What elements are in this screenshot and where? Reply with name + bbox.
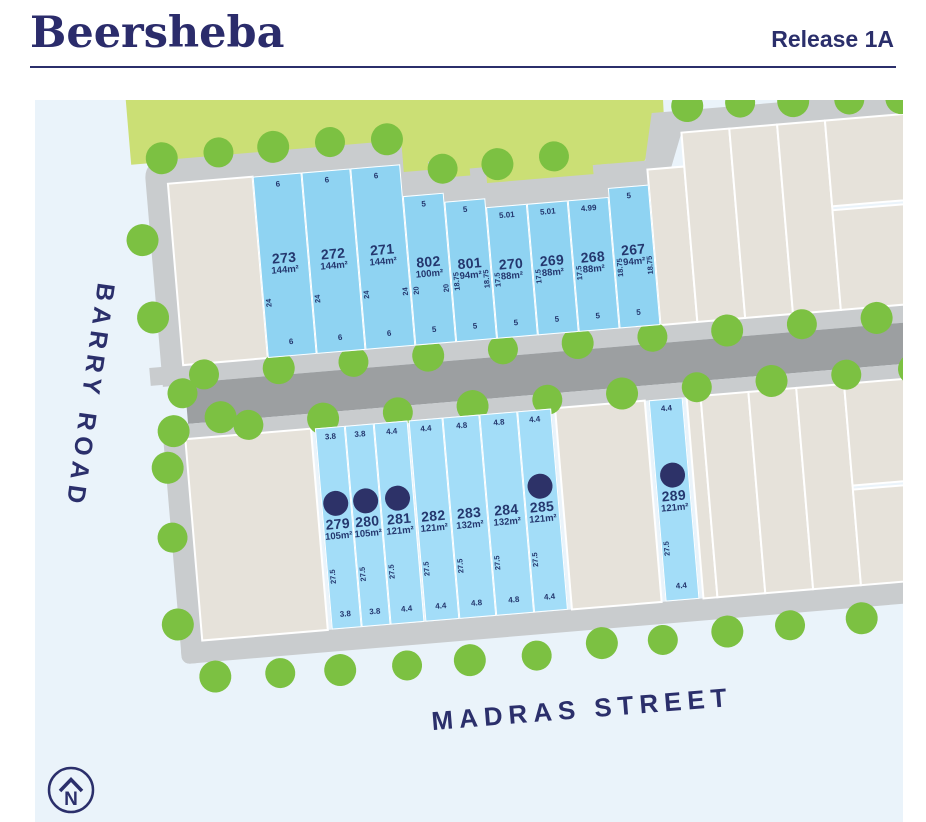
rear-dim: 5 xyxy=(414,323,454,335)
sold-dot xyxy=(659,462,686,489)
page-title: Beersheba xyxy=(30,8,284,58)
lot-289[interactable]: 4.44.427.5289121m² xyxy=(649,397,700,601)
site-plan-map: 6624273144m²6624272144m²662424271144m²55… xyxy=(35,100,903,822)
lot-label: 26794m² xyxy=(593,238,674,272)
rear-dim: 4.4 xyxy=(424,600,457,612)
frontage-dim: 4.8 xyxy=(481,416,517,428)
frontage-dim: 6 xyxy=(352,169,400,182)
rear-dim: 3.8 xyxy=(361,606,389,617)
side-dim-left: 27.5 xyxy=(492,556,502,571)
plan-rotated-group: 6624273144m²6624272144m²662424271144m²55… xyxy=(35,100,903,753)
side-dim-left: 27.5 xyxy=(530,552,540,567)
rear-dim: 4.8 xyxy=(459,597,495,609)
frontage-dim: 4.8 xyxy=(444,420,480,432)
side-dim-right: 20 xyxy=(441,283,451,292)
lot-label: 285121m² xyxy=(505,496,579,529)
frontage-dim: 5.01 xyxy=(487,209,527,221)
side-dim-left: 27.5 xyxy=(662,541,672,556)
side-dim-left: 24 xyxy=(264,298,274,307)
rear-dim: 5 xyxy=(578,310,618,322)
side-dim-left: 27.5 xyxy=(357,567,367,582)
lots-layer: 6624273144m²6624272144m²662424271144m²55… xyxy=(35,100,903,753)
rear-dim: 5 xyxy=(537,313,577,325)
rear-dim: 5 xyxy=(496,317,536,329)
rear-dim: 6 xyxy=(267,335,315,348)
sold-dot xyxy=(384,485,411,512)
compass-n-label: N xyxy=(64,789,78,810)
frontage-dim: 3.8 xyxy=(346,428,374,439)
side-dim-left: 27.5 xyxy=(328,569,338,584)
side-dim-left: 24 xyxy=(313,294,323,303)
sold-dot xyxy=(352,487,379,514)
rear-dim: 6 xyxy=(316,331,364,344)
side-dim-left: 27.5 xyxy=(387,564,397,579)
frontage-dim: 5.01 xyxy=(528,205,568,217)
frontage-dim: 5 xyxy=(609,190,649,202)
frontage-dim: 4.4 xyxy=(409,423,442,435)
frontage-dim: 6 xyxy=(303,173,351,186)
rear-dim: 4.4 xyxy=(390,603,423,615)
rear-dim: 4.8 xyxy=(496,594,532,606)
frontage-dim: 5 xyxy=(445,203,485,215)
side-dim-left: 24 xyxy=(362,290,372,299)
rear-dim: 5 xyxy=(619,306,659,318)
frontage-dim: 4.99 xyxy=(569,202,609,214)
frontage-dim: 3.8 xyxy=(316,431,344,442)
frontage-dim: 6 xyxy=(254,178,302,191)
frontage-dim: 4.4 xyxy=(650,403,683,415)
release-label: Release 1A xyxy=(771,26,894,53)
side-dim-left: 27.5 xyxy=(421,562,431,577)
rear-dim: 5 xyxy=(455,320,495,332)
side-dim-left: 20 xyxy=(411,286,421,295)
side-dim-right: 24 xyxy=(400,287,410,296)
rear-dim: 6 xyxy=(365,327,413,340)
rear-dim: 3.8 xyxy=(331,608,359,619)
sold-dot xyxy=(323,490,350,517)
frontage-dim: 4.4 xyxy=(518,414,551,426)
sold-dot xyxy=(527,473,554,500)
side-dim-left: 27.5 xyxy=(455,559,465,574)
north-compass-icon: N xyxy=(45,764,97,816)
lot-label: 289121m² xyxy=(637,485,711,518)
rear-dim: 4.4 xyxy=(533,591,566,603)
frontage-dim: 5 xyxy=(404,198,444,210)
frontage-dim: 4.4 xyxy=(375,426,408,438)
header-divider xyxy=(30,66,896,68)
rear-dim: 4.4 xyxy=(665,580,698,592)
